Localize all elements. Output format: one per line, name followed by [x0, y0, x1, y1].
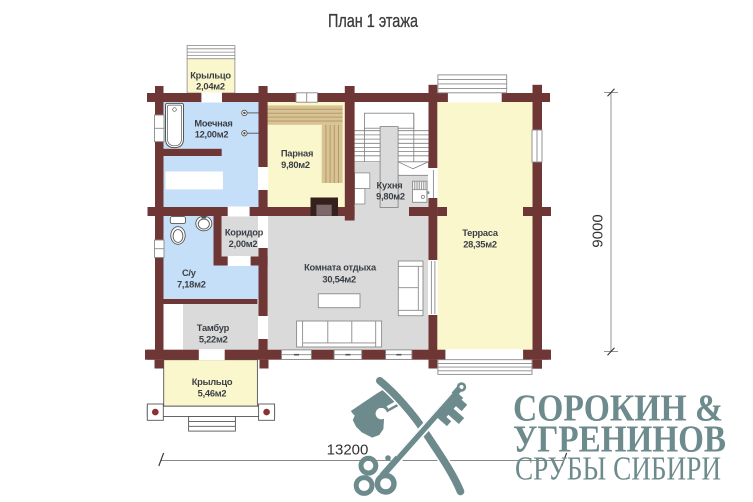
svg-text:2,00м2: 2,00м2 — [229, 239, 258, 249]
svg-text:Кухня: Кухня — [377, 181, 403, 191]
svg-text:Крыльцо: Крыльцо — [190, 71, 231, 81]
svg-text:30,54м2: 30,54м2 — [322, 274, 356, 284]
svg-text:13200: 13200 — [327, 442, 369, 459]
svg-text:12,00м2: 12,00м2 — [195, 130, 229, 140]
svg-text:Парная: Парная — [281, 149, 313, 159]
svg-text:5,22м2: 5,22м2 — [199, 334, 228, 344]
svg-text:9,80м2: 9,80м2 — [376, 192, 405, 202]
svg-text:План 1 этажа: План 1 этажа — [328, 10, 419, 31]
svg-text:2,04м2: 2,04м2 — [196, 82, 225, 92]
svg-text:С/у: С/у — [182, 268, 197, 278]
svg-text:Комната отдыха: Комната отдыха — [304, 263, 377, 273]
svg-text:Коридор: Коридор — [225, 227, 264, 237]
svg-text:9,80м2: 9,80м2 — [281, 160, 310, 170]
svg-text:Терраса: Терраса — [462, 228, 499, 238]
svg-text:СРУБЫ СИБИРИ: СРУБЫ СИБИРИ — [515, 451, 721, 488]
svg-text:28,35м2: 28,35м2 — [463, 239, 497, 249]
svg-text:Тамбур: Тамбур — [197, 323, 230, 333]
svg-text:5,46м2: 5,46м2 — [198, 388, 227, 398]
svg-text:7,18м2: 7,18м2 — [177, 280, 206, 290]
svg-text:Моечная: Моечная — [194, 118, 232, 128]
svg-text:9000: 9000 — [590, 214, 607, 247]
svg-text:Крыльцо: Крыльцо — [192, 377, 233, 387]
